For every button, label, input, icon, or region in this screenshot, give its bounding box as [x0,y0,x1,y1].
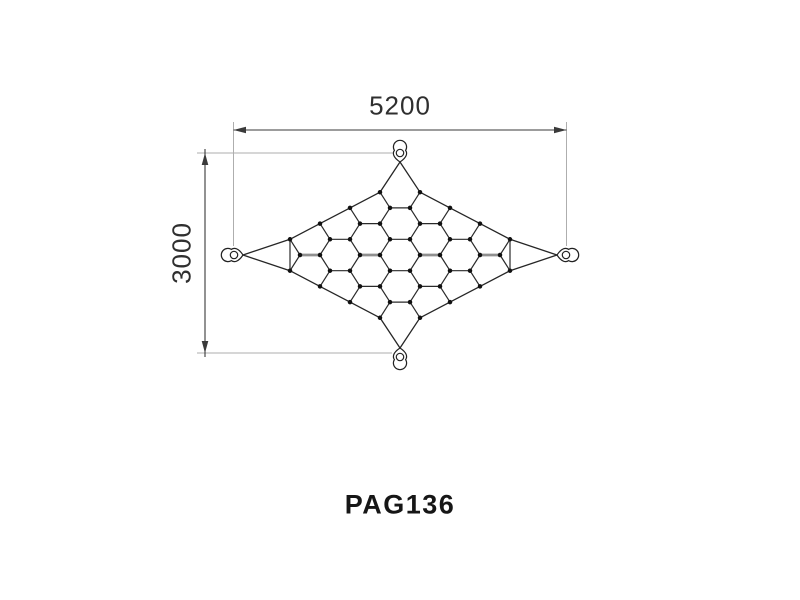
dimension-arrow-icon [202,341,209,353]
mesh-bond [440,208,450,224]
shackle-ring-icon-top [393,140,406,162]
knot-dot [288,268,293,273]
knot-dot [408,268,413,273]
knot-dot [468,237,473,242]
dimension-lines [202,127,567,357]
technical-drawing-page: 5200 3000 PAG136 [0,0,800,600]
mesh-bond [500,255,510,271]
mesh-bond [470,271,480,287]
mesh-bond [380,271,390,287]
mesh-bond [350,239,360,255]
knot-dot [378,316,383,321]
dimension-arrow-icon [234,127,247,134]
knot-dot [448,300,453,305]
height-dimension-value: 3000 [167,222,197,284]
knot-dot [448,206,453,211]
knot-dot [408,237,413,242]
knot-dot [438,221,443,226]
mesh-bond [410,302,420,318]
mesh-bond [380,286,390,302]
knot-dot [418,284,423,289]
shackle-outline [557,248,579,261]
width-dimension-value: 5200 [369,91,431,121]
shackle-outline [393,140,406,162]
mesh-bond [380,255,390,271]
knot-dot [408,300,413,305]
mesh-bond [320,239,330,255]
mesh-bond [320,224,330,240]
net-drawing-canvas: 5200 3000 PAG136 [0,0,800,600]
knot-dot [478,284,483,289]
knot-dot [418,316,423,321]
knot-dot [388,300,393,305]
mesh-bond [380,239,390,255]
mesh-bond [440,286,450,302]
mesh-bond [470,224,480,240]
knot-dot [328,268,333,273]
knot-dot [388,237,393,242]
knot-dot [388,268,393,273]
mesh-bond [440,255,450,271]
knot-dot [508,268,513,273]
knot-dot [318,253,323,258]
anchor-rings [221,140,578,369]
mesh-bond [410,208,420,224]
shackle-outline [221,248,243,261]
mesh-bond [410,286,420,302]
mesh-bond [380,208,390,224]
knot-dot [378,190,383,195]
mesh-bond [440,239,450,255]
knot-dot [328,237,333,242]
mesh-bond [380,224,390,240]
mesh-bond [500,239,510,255]
mesh-bond [440,271,450,287]
knot-dot [358,253,363,258]
hexagonal-net-mesh [243,162,557,348]
knot-dot [378,221,383,226]
mesh-bonds [290,192,510,318]
mesh-bond [350,255,360,271]
knot-dot [438,284,443,289]
knot-dot [508,237,513,242]
knot-dot [318,284,323,289]
mesh-bond [410,192,420,208]
knot-dot [498,253,503,258]
mesh-bond [470,239,480,255]
shackle-ring-icon-bottom [393,348,406,370]
mesh-bond [380,302,390,318]
shackle-ring-icon-left [221,248,243,261]
mesh-bond [410,224,420,240]
knot-dot [318,221,323,226]
shackle-ring-icon-right [557,248,579,261]
width-dimension: 5200 [369,91,431,121]
knot-dot [478,253,483,258]
mesh-bond [350,271,360,287]
knot-dot [378,284,383,289]
product-title-text: PAG136 [345,490,456,520]
mesh-bond [320,255,330,271]
knot-dot [418,221,423,226]
knot-dot [348,237,353,242]
knot-dot [418,190,423,195]
knot-dot [378,253,383,258]
height-dimension: 3000 [167,222,197,284]
mesh-bond [290,239,300,255]
knot-dot [418,253,423,258]
knot-dot [358,284,363,289]
knot-dot [348,300,353,305]
knot-dot [348,268,353,273]
knot-dot [448,237,453,242]
mesh-bond [410,239,420,255]
knot-dot [438,253,443,258]
knot-dot [408,206,413,211]
knot-dot [478,221,483,226]
knot-dot [348,206,353,211]
knot-dots [288,190,513,320]
knot-dot [468,268,473,273]
mesh-bond [380,192,390,208]
knot-dot [388,206,393,211]
tip-chords [290,239,510,270]
dimension-arrow-icon [202,153,209,165]
knot-dot [448,268,453,273]
product-title: PAG136 [345,490,456,520]
knot-dot [358,221,363,226]
mesh-bond [470,255,480,271]
mesh-bond [350,286,360,302]
mesh-bond [440,224,450,240]
mesh-bond [320,271,330,287]
dimension-arrow-icon [554,127,567,134]
mesh-bond [410,271,420,287]
knot-dot [298,253,303,258]
shackle-outline [393,348,406,370]
mesh-bond [350,208,360,224]
knot-dot [288,237,293,242]
mesh-bond [290,255,300,271]
mesh-bond [410,255,420,271]
mesh-bond [350,224,360,240]
